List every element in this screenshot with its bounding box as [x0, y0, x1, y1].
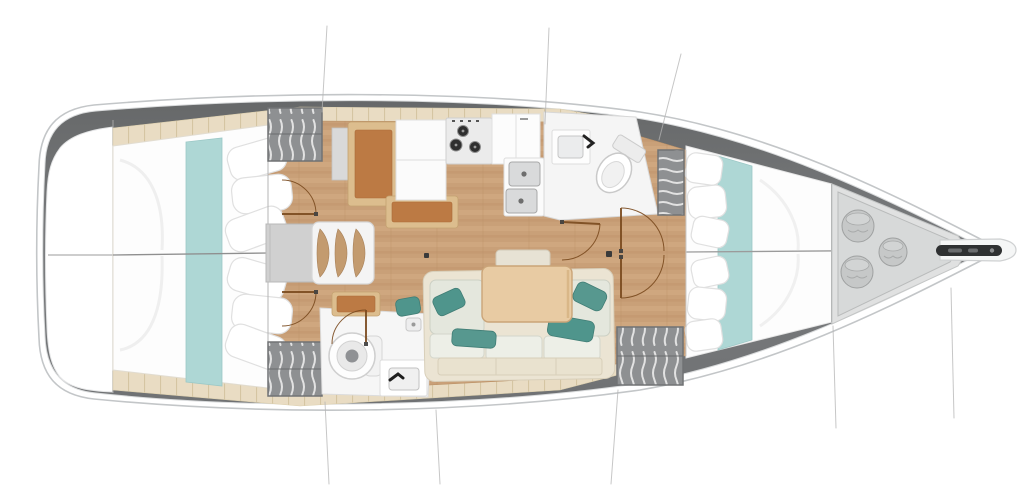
vberth-pillow	[686, 286, 727, 322]
sink-drain	[518, 198, 523, 203]
accent-pillow	[395, 296, 422, 317]
aft-head	[320, 308, 432, 397]
wardrobe-locker	[658, 150, 684, 215]
nav-bench	[392, 202, 452, 222]
shelf-top	[337, 296, 375, 312]
vberth-pillow	[684, 152, 724, 187]
burner-center	[474, 146, 477, 149]
anchor-roller-pin	[968, 249, 978, 253]
shower-drain-dot	[412, 323, 416, 327]
fender	[879, 238, 907, 266]
yacht-floorplan: Sailing yacht interior layout plan, top-…	[0, 0, 1024, 485]
aft-toilet	[329, 333, 382, 379]
aft-sink	[380, 360, 427, 396]
salon-table	[482, 266, 572, 322]
side-shelf	[332, 292, 380, 316]
counter-handle	[520, 118, 528, 120]
section-line	[833, 326, 836, 428]
stern-platform	[46, 120, 114, 392]
settee-front-trim	[438, 358, 602, 375]
section-line	[611, 390, 618, 484]
burner-center	[455, 144, 458, 147]
floorplan-svg: Sailing yacht interior layout plan, top-…	[0, 0, 1024, 485]
step-treads	[317, 229, 365, 277]
nav-desk	[355, 130, 392, 198]
aft-toilet-center	[346, 350, 359, 363]
transom-floor	[46, 127, 114, 392]
floor-stop	[424, 253, 429, 258]
stove	[446, 118, 492, 164]
section-line	[436, 410, 440, 484]
section-line	[951, 288, 954, 418]
burner-center	[462, 130, 465, 133]
vberth-runner	[718, 156, 752, 350]
fender	[842, 210, 874, 242]
berth-runner	[186, 138, 222, 386]
engine-compartment	[266, 224, 314, 282]
anchor-roller-pin	[948, 249, 962, 253]
section-line	[325, 402, 329, 484]
accent-pillow	[451, 328, 496, 348]
head-sink-basin	[558, 136, 583, 158]
floor-stop	[606, 251, 612, 257]
bowsprit	[936, 239, 1016, 261]
rigging-line	[322, 26, 327, 112]
sink-drain	[521, 171, 526, 176]
fender	[841, 256, 873, 288]
vberth-pillow	[686, 184, 727, 220]
vberth-pillow	[684, 318, 724, 353]
anchor-roller-wheel	[990, 248, 994, 252]
double-sink	[504, 158, 544, 216]
